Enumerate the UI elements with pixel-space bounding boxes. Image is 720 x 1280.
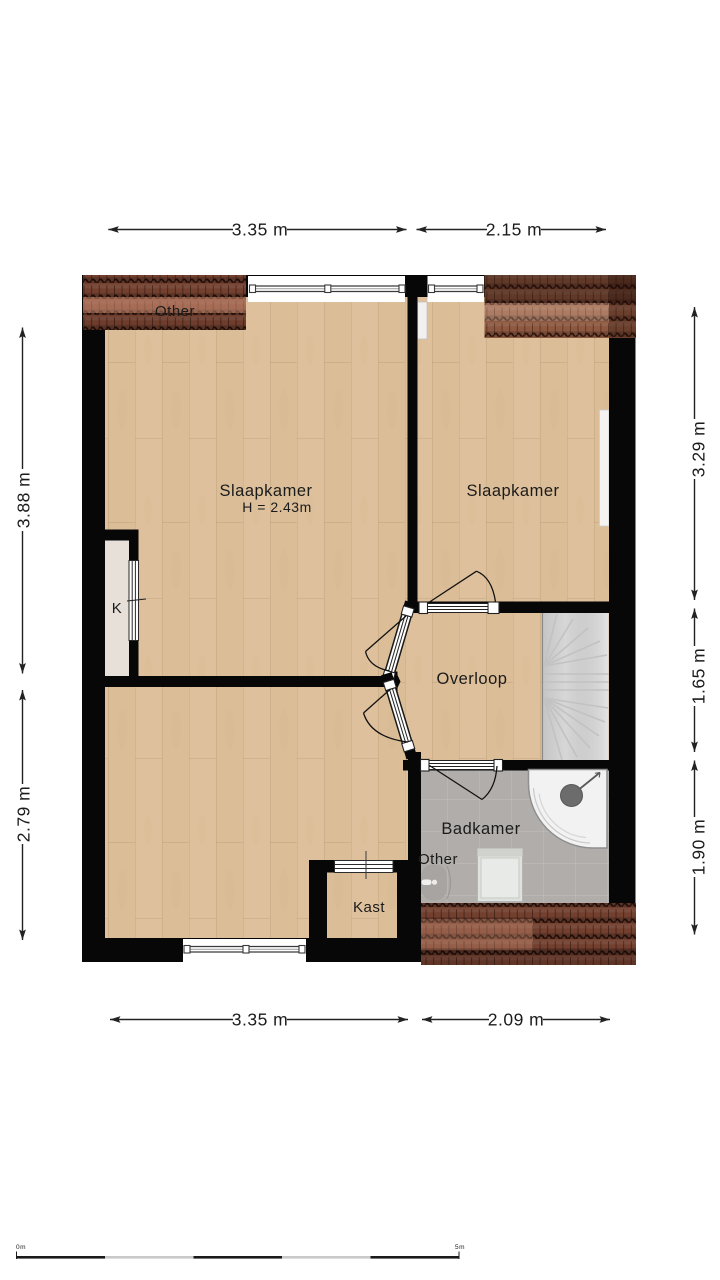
svg-text:2.79 m: 2.79 m [14,786,34,843]
svg-text:H = 2.43m: H = 2.43m [242,499,311,515]
svg-text:1.90 m: 1.90 m [689,819,709,876]
svg-text:Overloop: Overloop [437,670,508,688]
svg-text:Slaapkamer: Slaapkamer [466,482,559,500]
svg-text:Slaapkamer: Slaapkamer [219,482,312,500]
svg-text:Kast: Kast [353,899,385,916]
svg-text:Other: Other [418,851,458,868]
svg-text:3.88 m: 3.88 m [14,472,34,529]
svg-text:3.29 m: 3.29 m [689,421,709,478]
svg-text:K: K [112,600,123,617]
svg-text:2.09 m: 2.09 m [488,1010,545,1030]
svg-text:1.65 m: 1.65 m [689,648,709,705]
svg-text:0m: 0m [16,1244,26,1251]
svg-text:Other: Other [155,303,195,320]
svg-text:3.35 m: 3.35 m [232,220,289,240]
svg-text:2.15 m: 2.15 m [486,220,543,240]
svg-text:5m: 5m [455,1244,465,1251]
svg-text:3.35 m: 3.35 m [232,1010,289,1030]
svg-text:Badkamer: Badkamer [441,820,520,838]
